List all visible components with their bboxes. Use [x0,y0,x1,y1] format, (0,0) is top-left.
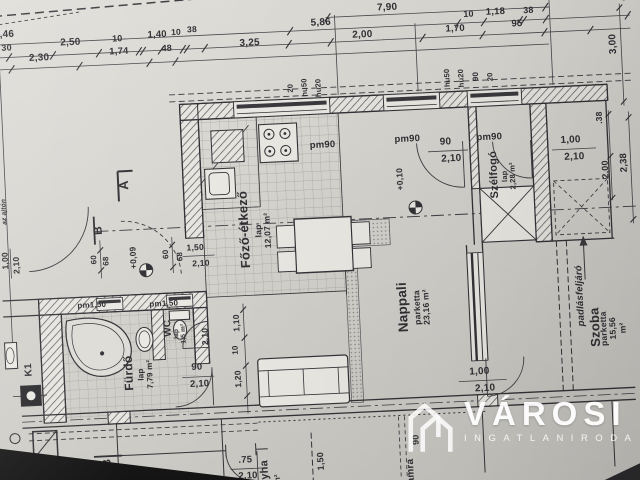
plan-label: 2,10 [12,256,22,274]
watermark-subtitle: INGATLANIRODA [464,433,638,444]
plan-label: 2,10 [475,382,496,394]
plan-label: 90 [191,362,202,373]
plan-label: 1,20 [233,370,243,388]
plan-label: hu20 [314,79,323,98]
plan-label: 2,50 [60,37,81,49]
plan-label: 38 [523,6,534,16]
plan-label: 95 [511,19,522,30]
plan-label: 1,70 [445,24,465,35]
plan-label: 3,00 [607,34,619,55]
plan-label: 2,30 [29,52,50,64]
floorplan-photo: 7,90101,18388,465,8695302,50101,4010383,… [0,0,640,480]
plan-label: 1,50 [316,452,327,471]
plan-label: 5 [621,0,627,4]
plan-label: 48 [161,44,172,54]
plan-label: 2,10 [200,328,210,346]
attic-access-label: padlásfeljáró [574,265,587,327]
plan-label: 20 [486,72,495,81]
plan-label: 1,40 [147,30,167,41]
watermark-logo-icon [408,397,454,455]
plan-label: hu50 [443,68,452,87]
room-label-kamra: kamra [405,458,417,480]
plan-label: 2,00 [601,160,612,179]
plan-label: 1,00 [1,252,11,270]
room-label-fozo-etkezo: Főző-étkező [235,191,253,269]
plan-label: 1,00 [560,134,581,146]
room-area-nappali: parketta 23,16 m² [412,289,432,325]
plan-label: 2,10 [441,153,462,165]
plan-label: 68 [102,256,111,266]
plan-label: 2,00 [352,29,373,41]
plan-label: 90 [472,72,481,82]
room-area-fozo-etkezo: lap 12,07 m² [253,212,273,248]
plan-label: 20 [286,84,295,93]
plan-label: 2,38 [619,153,630,173]
plan-label: 10 [171,28,181,38]
watermark: VÁROSI INGATLANIRODA [408,397,638,455]
plan-label: 2,10 [190,379,210,390]
window-spec-pm90: pm90 [394,134,420,146]
margin-note: az ajtón [0,199,8,225]
plan-label: 8,46 [0,29,14,41]
plan-label: .38 [595,111,605,124]
plan-label: 90 [440,136,452,148]
plan-label: hu20 [457,69,466,88]
plan-label: 1,00 [469,366,490,378]
plan-label: 10 [231,345,240,355]
chimney-label-k1: K1 [23,363,35,377]
section-marker-b: B [92,226,106,235]
window-spec-pm150: pm1,50 [77,301,106,311]
room-area-wc: lap 1,5 m² [173,323,188,344]
room-label-nappali: Nappali [395,282,412,333]
plan-label: 60 [90,255,99,265]
window-spec-pm150: pm1,50 [149,299,178,309]
plan-label: 1,10 [232,314,242,332]
plan-label: .75 [238,455,252,466]
level-marker-010: +0,10 [395,168,405,191]
watermark-brand: VÁROSI [464,397,638,430]
plan-label: 1,74 [109,47,129,58]
plan-label: 2,10 [192,259,210,269]
plan-label: 10 [463,10,474,20]
plan-label: 3,25 [239,37,260,49]
plan-label: 1,50 [186,243,204,253]
room-area-szoba: parketta 15,56 m² [599,310,629,346]
plan-label: 1,18 [486,7,506,18]
plan-label: 38 [187,25,197,35]
plan-label: 10 [112,34,123,44]
plan-label: 68 [176,252,185,262]
section-marker-a: A [117,180,132,190]
room-label-furdo: Fürdő [122,355,137,391]
dim-790: 7,90 [377,2,398,14]
plan-label: 60 [162,249,171,259]
plan-label: 2,10 [564,151,585,163]
level-marker-009: +0,09 [128,246,138,269]
room-label-konyha: Konyha [258,460,272,480]
plan-label: 30 [1,43,12,53]
plan-label: m² [274,474,283,480]
room-area-szelfogo: lap 2,28 m² [500,162,518,190]
window-spec-pm90: pm90 [310,140,336,152]
window-spec-pm90: pm90 [476,132,502,144]
room-area-furdo: lap 7,79 m² [137,359,156,389]
plan-label: hu50 [300,78,309,97]
plan-label: 5,86 [310,17,331,29]
